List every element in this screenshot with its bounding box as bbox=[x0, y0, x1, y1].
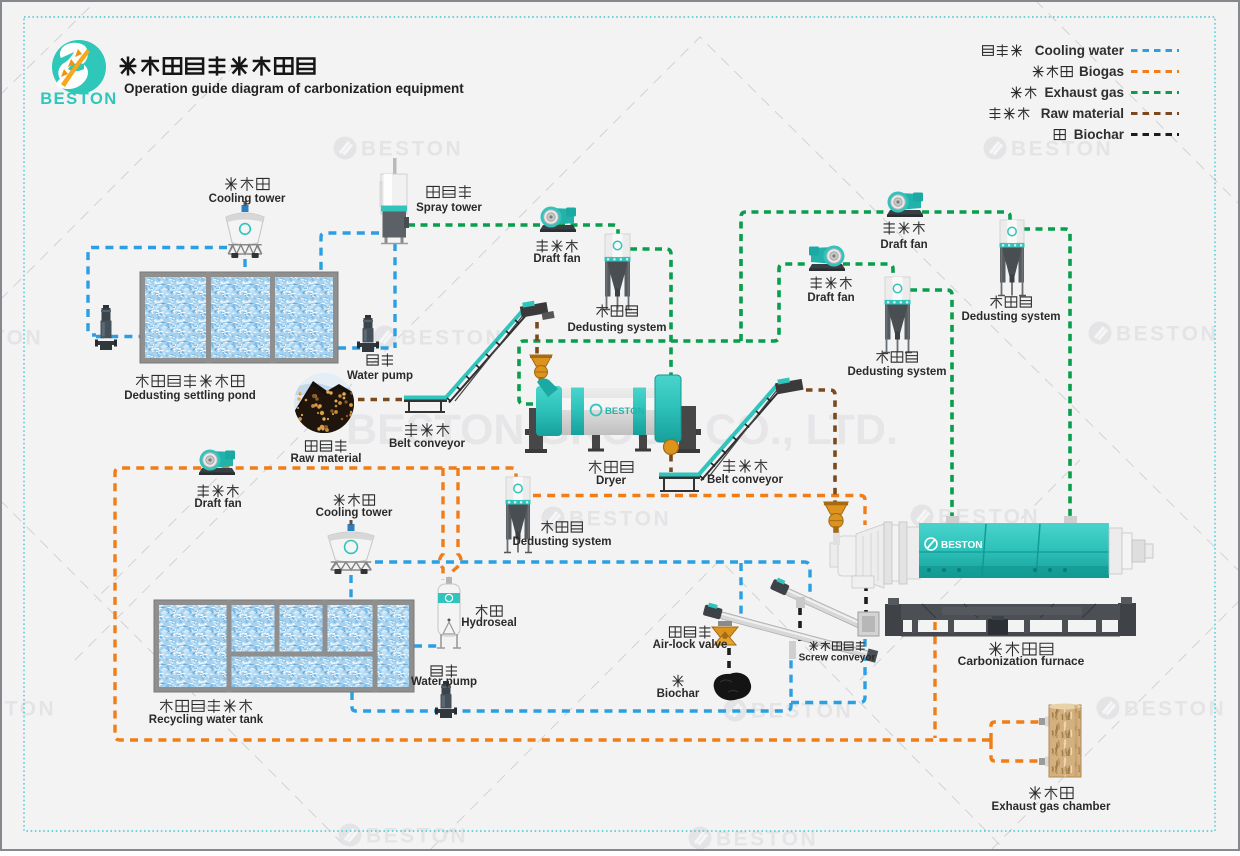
svg-text:Dedusting system: Dedusting system bbox=[567, 322, 666, 334]
svg-text:Exhaust gas chamber: Exhaust gas chamber bbox=[992, 801, 1111, 813]
svg-text:Draft fan: Draft fan bbox=[533, 253, 580, 265]
svg-text:Draft fan: Draft fan bbox=[807, 292, 854, 304]
svg-text:Cooling tower: Cooling tower bbox=[316, 507, 393, 519]
svg-text:BESTON: BESTON bbox=[941, 540, 983, 551]
svg-text:Dryer: Dryer bbox=[596, 475, 627, 487]
svg-text:Dedusting system: Dedusting system bbox=[847, 366, 946, 378]
svg-text:BESTON: BESTON bbox=[40, 90, 117, 108]
svg-text:Carbonization furnace: Carbonization furnace bbox=[958, 654, 1085, 668]
svg-text:Belt conveyor: Belt conveyor bbox=[707, 474, 784, 486]
svg-text:Draft fan: Draft fan bbox=[194, 498, 241, 510]
svg-text:Raw material: Raw material bbox=[1041, 106, 1124, 121]
svg-text:Draft fan: Draft fan bbox=[880, 239, 927, 251]
svg-text:Spray tower: Spray tower bbox=[416, 202, 482, 214]
svg-text:Dedusting system: Dedusting system bbox=[961, 311, 1060, 323]
svg-text:Biochar: Biochar bbox=[1074, 127, 1125, 142]
svg-text:Screw conveyor: Screw conveyor bbox=[799, 653, 876, 664]
svg-text:Cooling water: Cooling water bbox=[1035, 43, 1125, 58]
svg-text:Water pump: Water pump bbox=[347, 370, 413, 382]
svg-text:Cooling tower: Cooling tower bbox=[209, 193, 286, 205]
svg-text:Raw material: Raw material bbox=[291, 453, 362, 465]
svg-text:Water pump: Water pump bbox=[411, 676, 477, 688]
svg-text:Recycling water tank: Recycling water tank bbox=[149, 714, 264, 726]
svg-text:Exhaust gas: Exhaust gas bbox=[1044, 85, 1124, 100]
svg-text:Belt conveyor: Belt conveyor bbox=[389, 438, 466, 450]
svg-text:Dedusting settling pond: Dedusting settling pond bbox=[124, 390, 256, 402]
svg-text:Dedusting system: Dedusting system bbox=[512, 536, 611, 548]
svg-text:BESTON: BESTON bbox=[605, 406, 645, 417]
svg-text:Hydroseal: Hydroseal bbox=[461, 617, 517, 629]
svg-text:Biochar: Biochar bbox=[657, 688, 700, 700]
svg-text:Operation guide diagram of car: Operation guide diagram of carbonization… bbox=[124, 81, 464, 96]
svg-text:Biogas: Biogas bbox=[1079, 64, 1124, 79]
svg-text:Air-lock valve: Air-lock valve bbox=[653, 639, 728, 651]
